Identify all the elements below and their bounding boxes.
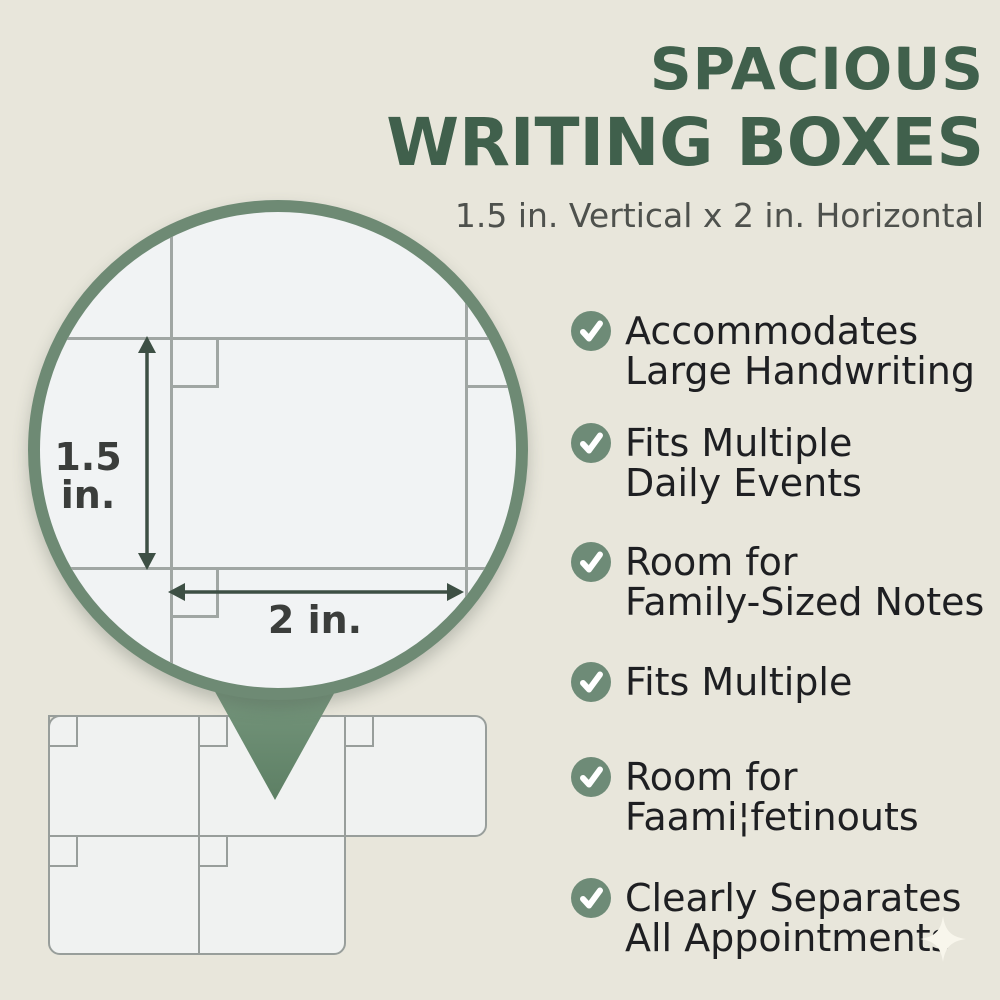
check-icon — [571, 757, 611, 797]
grid-line-vertical-right — [465, 212, 468, 688]
feature-line-1: Fits Multiple — [625, 662, 852, 702]
check-icon — [571, 662, 611, 702]
calendar-date-box — [198, 835, 228, 867]
feature-line-1: Accommodates — [625, 311, 975, 351]
feature-text: Clearly Separates All Appointments — [625, 878, 961, 958]
check-icon — [571, 311, 611, 351]
calendar-cell — [48, 835, 200, 955]
feature-item: Room for Faami¦fetinouts — [571, 757, 919, 837]
feature-line-1: Room for — [625, 757, 919, 797]
vertical-dimension-label: 1.5 in. — [30, 438, 146, 514]
feature-item: Accommodates Large Handwriting — [571, 311, 975, 391]
grid-line-horizontal-top — [40, 337, 516, 340]
date-corner-box — [465, 337, 514, 388]
feature-line-2: Faami¦fetinouts — [625, 797, 919, 837]
check-icon — [571, 423, 611, 463]
calendar-date-box — [198, 715, 228, 747]
feature-line-1: Fits Multiple — [625, 423, 862, 463]
horizontal-dimension-label: 2 in. — [250, 601, 380, 639]
feature-line-1: Clearly Separates — [625, 878, 961, 918]
grid-line-horizontal-bottom — [40, 567, 516, 570]
check-icon — [571, 878, 611, 918]
feature-text: Fits Multiple — [625, 662, 852, 702]
feature-line-2: Large Handwriting — [625, 351, 975, 391]
check-icon — [571, 542, 611, 582]
page-title-line-1: SPACIOUS — [650, 40, 984, 98]
feature-item: Fits Multiple — [571, 662, 852, 702]
feature-text: Room for Faami¦fetinouts — [625, 757, 919, 837]
feature-item: Fits Multiple Daily Events — [571, 423, 862, 503]
calendar-cell — [48, 715, 200, 837]
date-corner-box — [170, 337, 219, 388]
calendar-cell — [198, 835, 346, 955]
feature-item: Clearly Separates All Appointments — [571, 878, 961, 958]
page-title-line-2: WRITING BOXES — [386, 110, 984, 176]
infographic-canvas: SPACIOUS WRITING BOXES 1.5 in. Vertical … — [0, 0, 1000, 1000]
calendar-date-box — [48, 835, 78, 867]
feature-line-2: Family-Sized Notes — [625, 582, 984, 622]
page-subtitle: 1.5 in. Vertical x 2 in. Horizontal — [455, 198, 984, 234]
calendar-cell — [344, 715, 487, 837]
calendar-date-box — [48, 715, 78, 747]
feature-text: Room for Family-Sized Notes — [625, 542, 984, 622]
feature-text: Fits Multiple Daily Events — [625, 423, 862, 503]
feature-item: Room for Family-Sized Notes — [571, 542, 984, 622]
calendar-date-box — [344, 715, 374, 747]
feature-line-2: All Appointments — [625, 918, 961, 958]
feature-line-1: Room for — [625, 542, 984, 582]
feature-line-2: Daily Events — [625, 463, 862, 503]
feature-text: Accommodates Large Handwriting — [625, 311, 975, 391]
sparkle-icon — [918, 914, 968, 964]
